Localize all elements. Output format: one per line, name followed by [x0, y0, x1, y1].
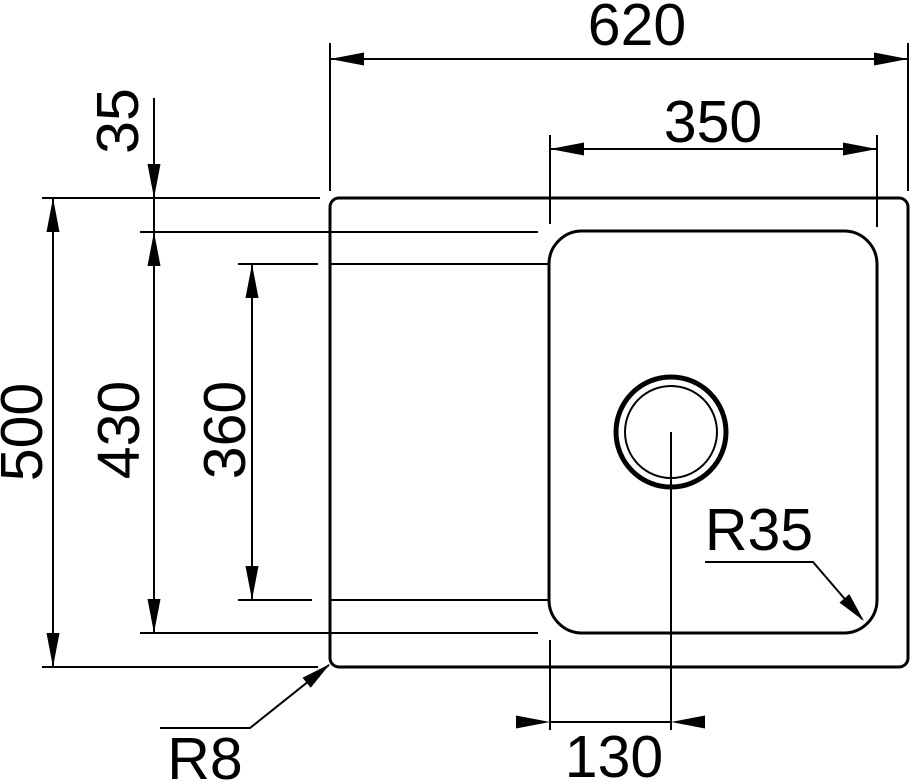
arrow-130-right [671, 716, 705, 729]
label-bowl-corner-radius: R35 [705, 497, 813, 563]
arrow-350-left [550, 143, 584, 156]
label-rim-to-bowl-offset: 35 [85, 88, 151, 154]
arrow-130-left [516, 716, 550, 729]
sink-dimension-drawing: 620 350 35 500 430 360 130 R8 R35 [0, 0, 911, 782]
leader-line-r35 [705, 562, 862, 619]
arrow-620-left [330, 53, 364, 66]
arrow-500-bottom [47, 633, 60, 667]
sink-bowl-outline [549, 231, 877, 633]
label-recess-depth: 360 [192, 381, 258, 479]
technical-drawing-page: 620 350 35 500 430 360 130 R8 R35 [0, 0, 911, 782]
arrow-360-bottom [246, 566, 259, 600]
arrow-430-bottom [148, 599, 161, 633]
sink-outer-rim [330, 198, 908, 667]
label-bowl-width: 350 [664, 89, 762, 155]
arrow-620-right [874, 53, 908, 66]
arrow-360-top [246, 264, 259, 298]
label-overall-depth: 500 [0, 383, 55, 481]
label-overall-width: 620 [588, 0, 686, 58]
label-rim-corner-radius: R8 [167, 726, 242, 782]
label-drain-offset: 130 [565, 724, 663, 782]
arrow-500-top [47, 198, 60, 232]
arrow-35-top [148, 164, 161, 198]
dimension-arrowheads [47, 53, 909, 729]
arrow-35-430-shared [148, 232, 161, 266]
dimension-lines [42, 43, 908, 730]
label-bowl-depth: 430 [86, 381, 152, 479]
leader-line-r8 [160, 665, 329, 728]
arrow-350-right [843, 143, 877, 156]
